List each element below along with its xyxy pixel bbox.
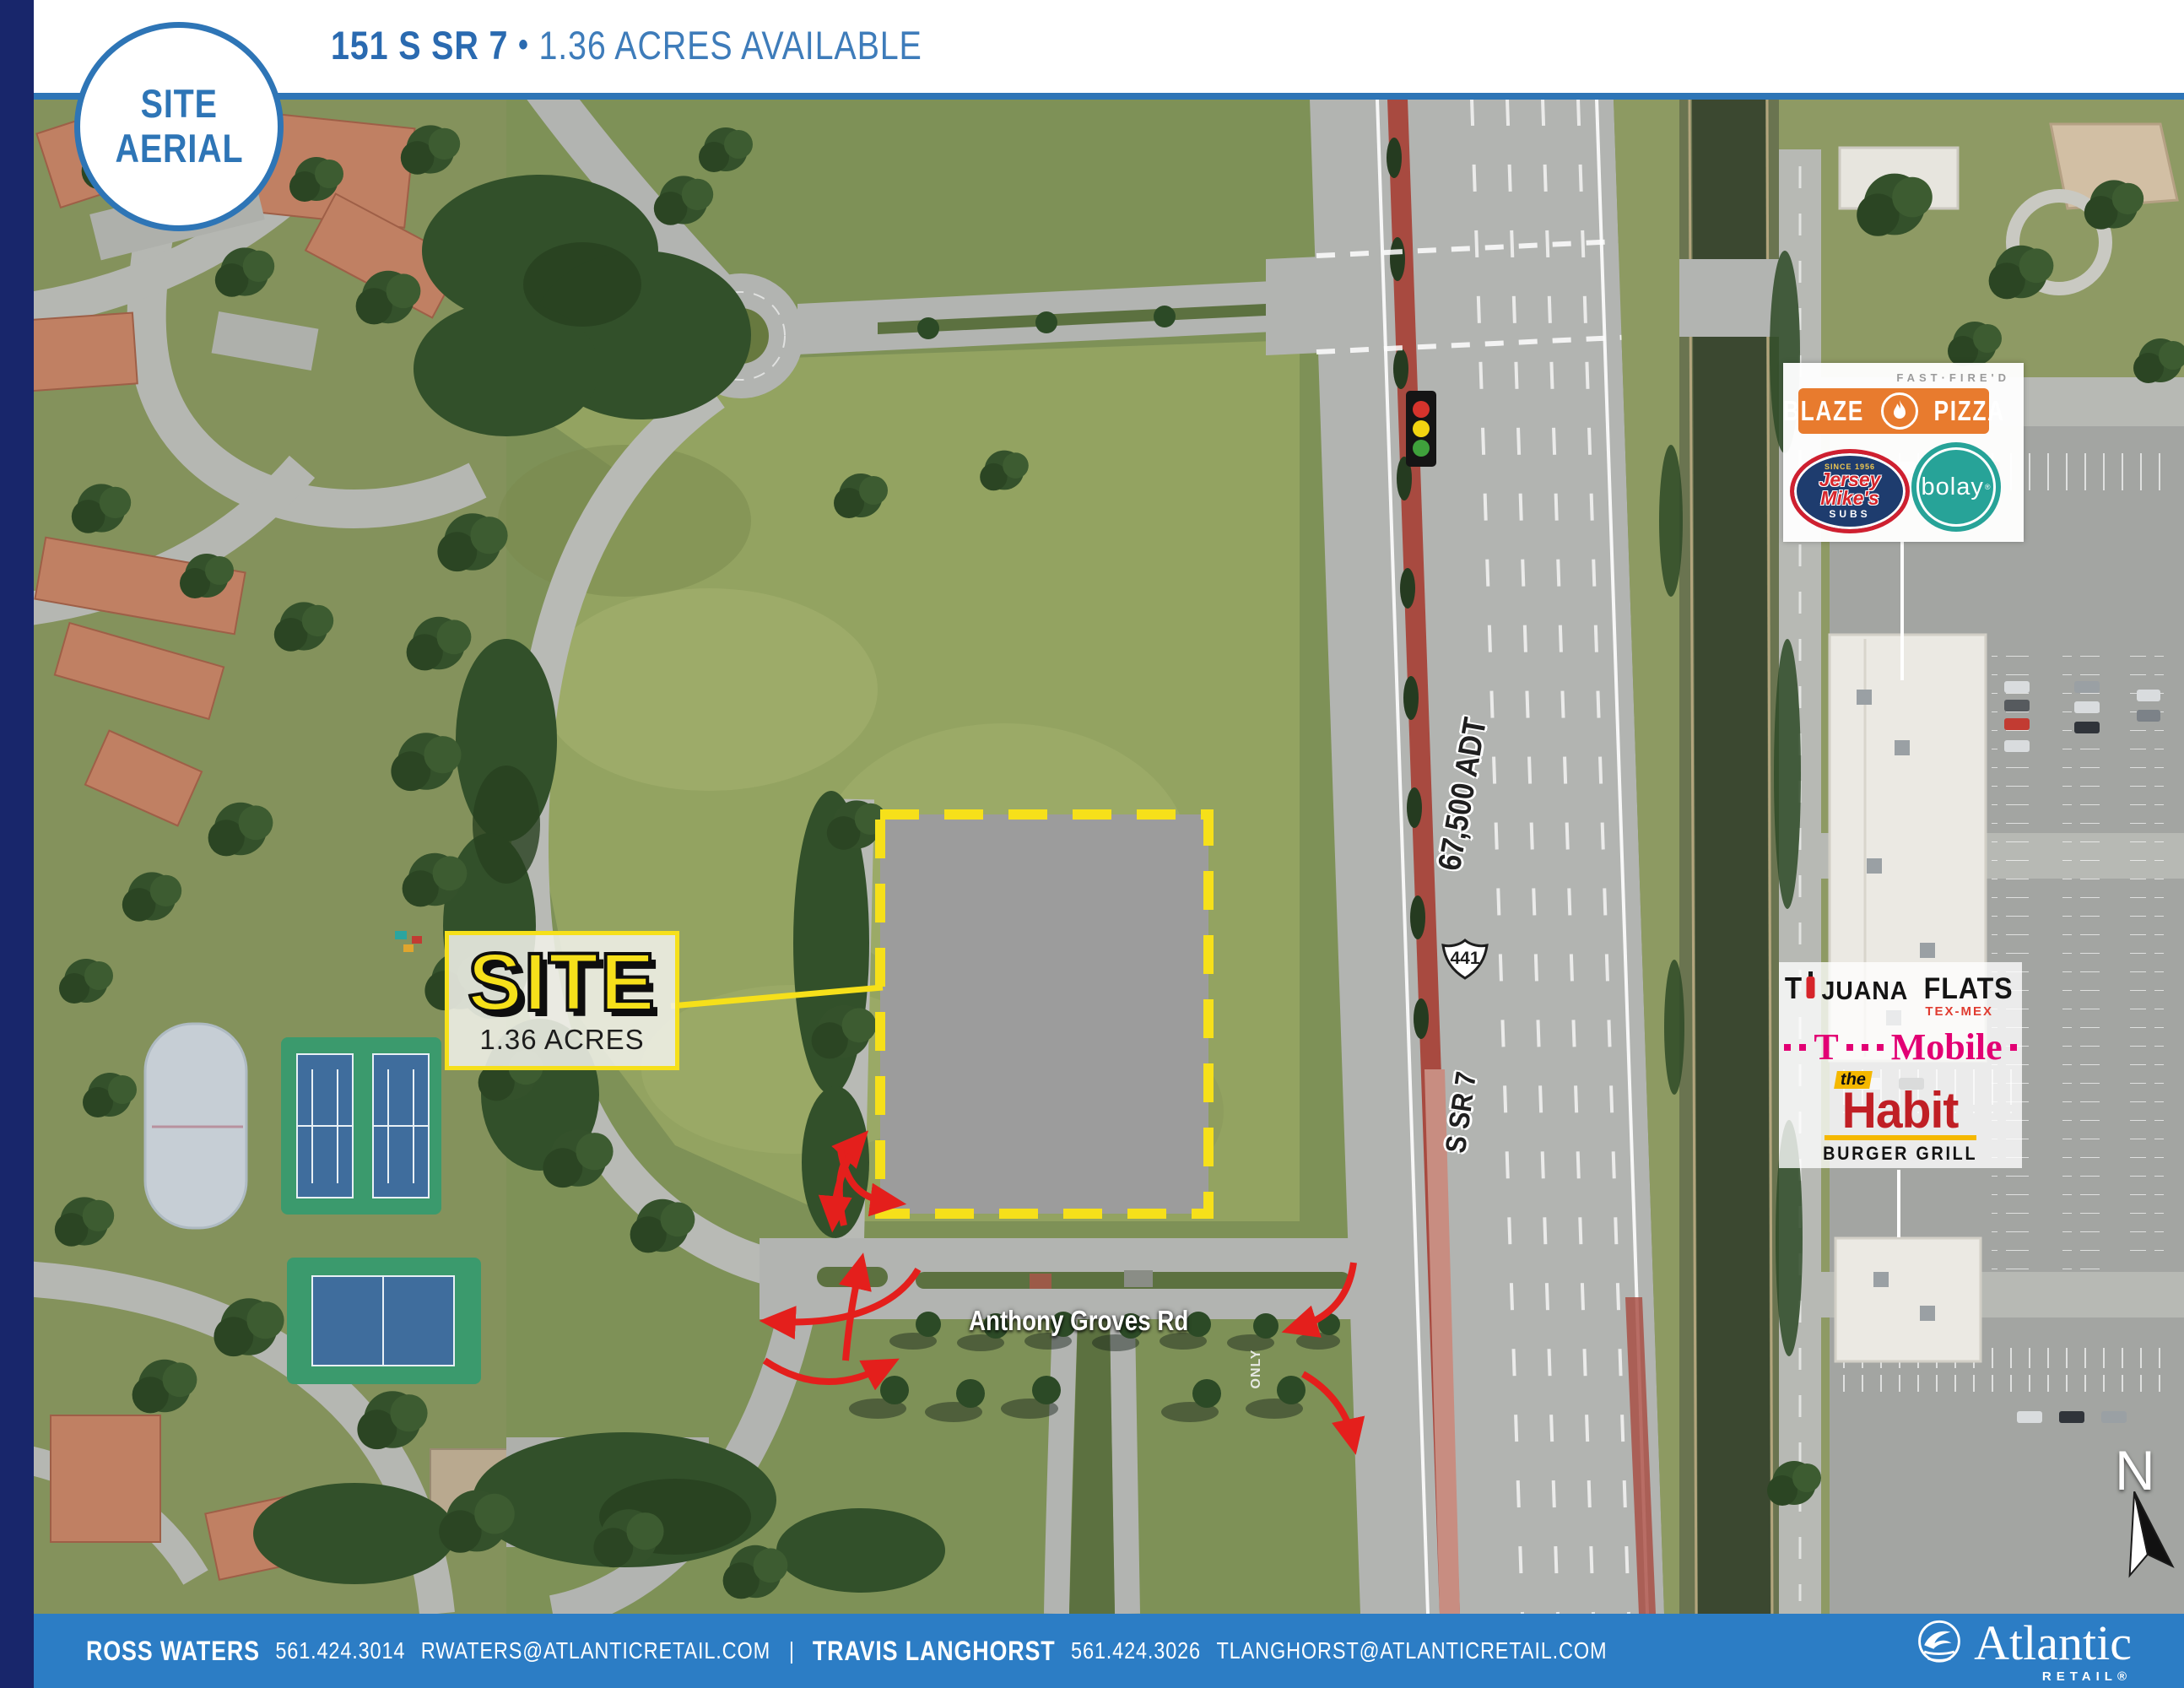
habit-tagline: BURGER GRILL xyxy=(1823,1143,1977,1165)
availability-text: 1.36 ACRES AVAILABLE xyxy=(538,23,922,68)
tenant-sign-box-top: FAST·FIRE'D BLAZE PIZZA SINCE 1956 Jerse… xyxy=(1783,363,2024,542)
tmobile-mobile: Mobile xyxy=(1891,1029,2003,1066)
tijuana-juana: JUANA xyxy=(1821,976,1908,1006)
hot-sauce-bottle-icon xyxy=(1805,971,1816,1004)
tijuana-t: T xyxy=(1784,971,1802,1006)
footer-bar: ROSS WATERS 561.424.3014 RWATERS@ATLANTI… xyxy=(34,1614,2184,1688)
tijuana-flats-word: FLATS xyxy=(1924,972,2014,1006)
road-label-anthony-groves: Anthony Groves Rd xyxy=(969,1305,1188,1337)
blaze-word-right: PIZZA xyxy=(1934,395,2005,427)
tenant-sign-box-right: T JUANA FLATS TEX-MEX T Mobile the Habit… xyxy=(1779,962,2022,1168)
contact-email[interactable]: RWATERS@ATLANTICRETAIL.COM xyxy=(421,1637,770,1664)
contact-phone: 561.424.3026 xyxy=(1071,1637,1201,1664)
site-callout: SITE 1.36 ACRES xyxy=(445,931,679,1070)
brand-sub: RETAIL® xyxy=(1974,1669,2132,1684)
north-label: N xyxy=(2115,1438,2155,1502)
badge-line2: AERIAL xyxy=(115,127,243,171)
footer-contacts: ROSS WATERS 561.424.3014 RWATERS@ATLANTI… xyxy=(86,1636,1607,1667)
flame-icon xyxy=(1881,392,1918,430)
title-separator: • xyxy=(518,26,529,63)
contact-name: ROSS WATERS xyxy=(86,1636,260,1667)
contact-name: TRAVIS LANGHORST xyxy=(813,1636,1056,1667)
blaze-pizza-tagline: FAST·FIRE'D xyxy=(1896,371,2010,384)
blaze-word-left: BLAZE xyxy=(1783,395,1864,427)
atlantic-retail-logo: Atlantic RETAIL® xyxy=(1915,1619,2132,1684)
site-address: 151 S SR 7 xyxy=(331,23,508,68)
bolay-name: bolay xyxy=(1922,473,1984,501)
badge-line1: SITE xyxy=(140,82,217,127)
habit-name: Habit xyxy=(1842,1089,1959,1132)
jersey-mikes-logo: SINCE 1956 Jersey Mike's SUBS xyxy=(1790,449,1910,533)
brand-name: Atlantic xyxy=(1974,1619,2132,1668)
habit-logo: the Habit BURGER GRILL xyxy=(1814,1071,1986,1165)
bolay-logo: bolay® xyxy=(1911,442,2001,532)
aerial-map-svg xyxy=(34,99,2184,1614)
pavement-only-marking: ONLY xyxy=(1249,1350,1264,1389)
header-rule xyxy=(34,93,2184,100)
site-aerial-badge: SITE AERIAL xyxy=(74,22,284,231)
jersey-mikes-subs: SUBS xyxy=(1829,508,1870,520)
blaze-pizza-logo: BLAZE PIZZA xyxy=(1798,388,1989,434)
site-callout-acres: 1.36 ACRES xyxy=(479,1024,644,1056)
left-navy-stripe xyxy=(0,0,34,1688)
tmobile-logo: T Mobile xyxy=(1780,1029,2020,1066)
tmobile-t: T xyxy=(1814,1029,1838,1066)
bolay-reg-mark: ® xyxy=(1985,483,1992,491)
contact-divider: | xyxy=(789,1637,794,1664)
tijuana-tagline: TEX-MEX xyxy=(1925,1004,1993,1019)
contact-email[interactable]: TLANGHORST@ATLANTICRETAIL.COM xyxy=(1216,1637,1607,1664)
tijuana-flats-logo: T JUANA FLATS xyxy=(1784,971,2018,1006)
aerial-map xyxy=(34,99,2184,1614)
contact-phone: 561.424.3014 xyxy=(275,1637,405,1664)
jersey-mikes-name-line2: Mike's xyxy=(1820,490,1879,507)
page-title: 151 S SR 7•1.36 ACRES AVAILABLE xyxy=(331,22,1035,68)
wave-icon xyxy=(1915,1619,1964,1668)
site-callout-title: SITE xyxy=(468,945,657,1019)
